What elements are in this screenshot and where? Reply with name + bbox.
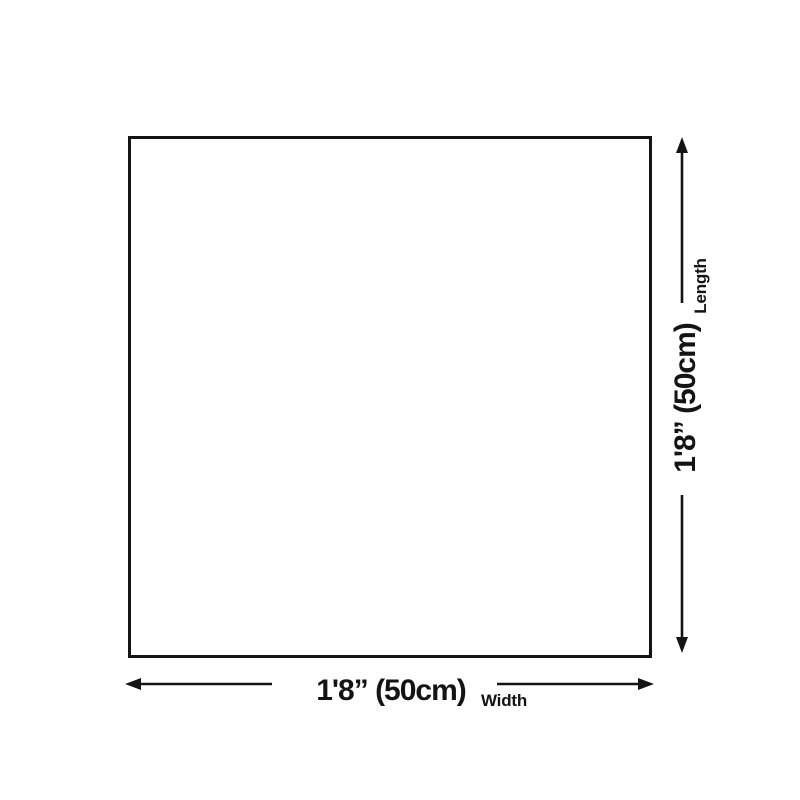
dimension-diagram: 1'8” (50cm) Width 1'8” (50cm) Length [0, 0, 800, 800]
length-arrow-down-icon [676, 495, 688, 653]
width-arrow-right-icon [497, 678, 654, 690]
length-arrow-up-icon [676, 137, 688, 303]
product-preview-square [128, 136, 652, 658]
length-axis-label: Length [691, 258, 711, 313]
width-arrow-left-icon [125, 678, 272, 690]
length-dimension-value: 1'8” (50cm) [669, 323, 703, 473]
width-dimension-value: 1'8” (50cm) [316, 674, 466, 708]
width-axis-label: Width [481, 691, 527, 711]
